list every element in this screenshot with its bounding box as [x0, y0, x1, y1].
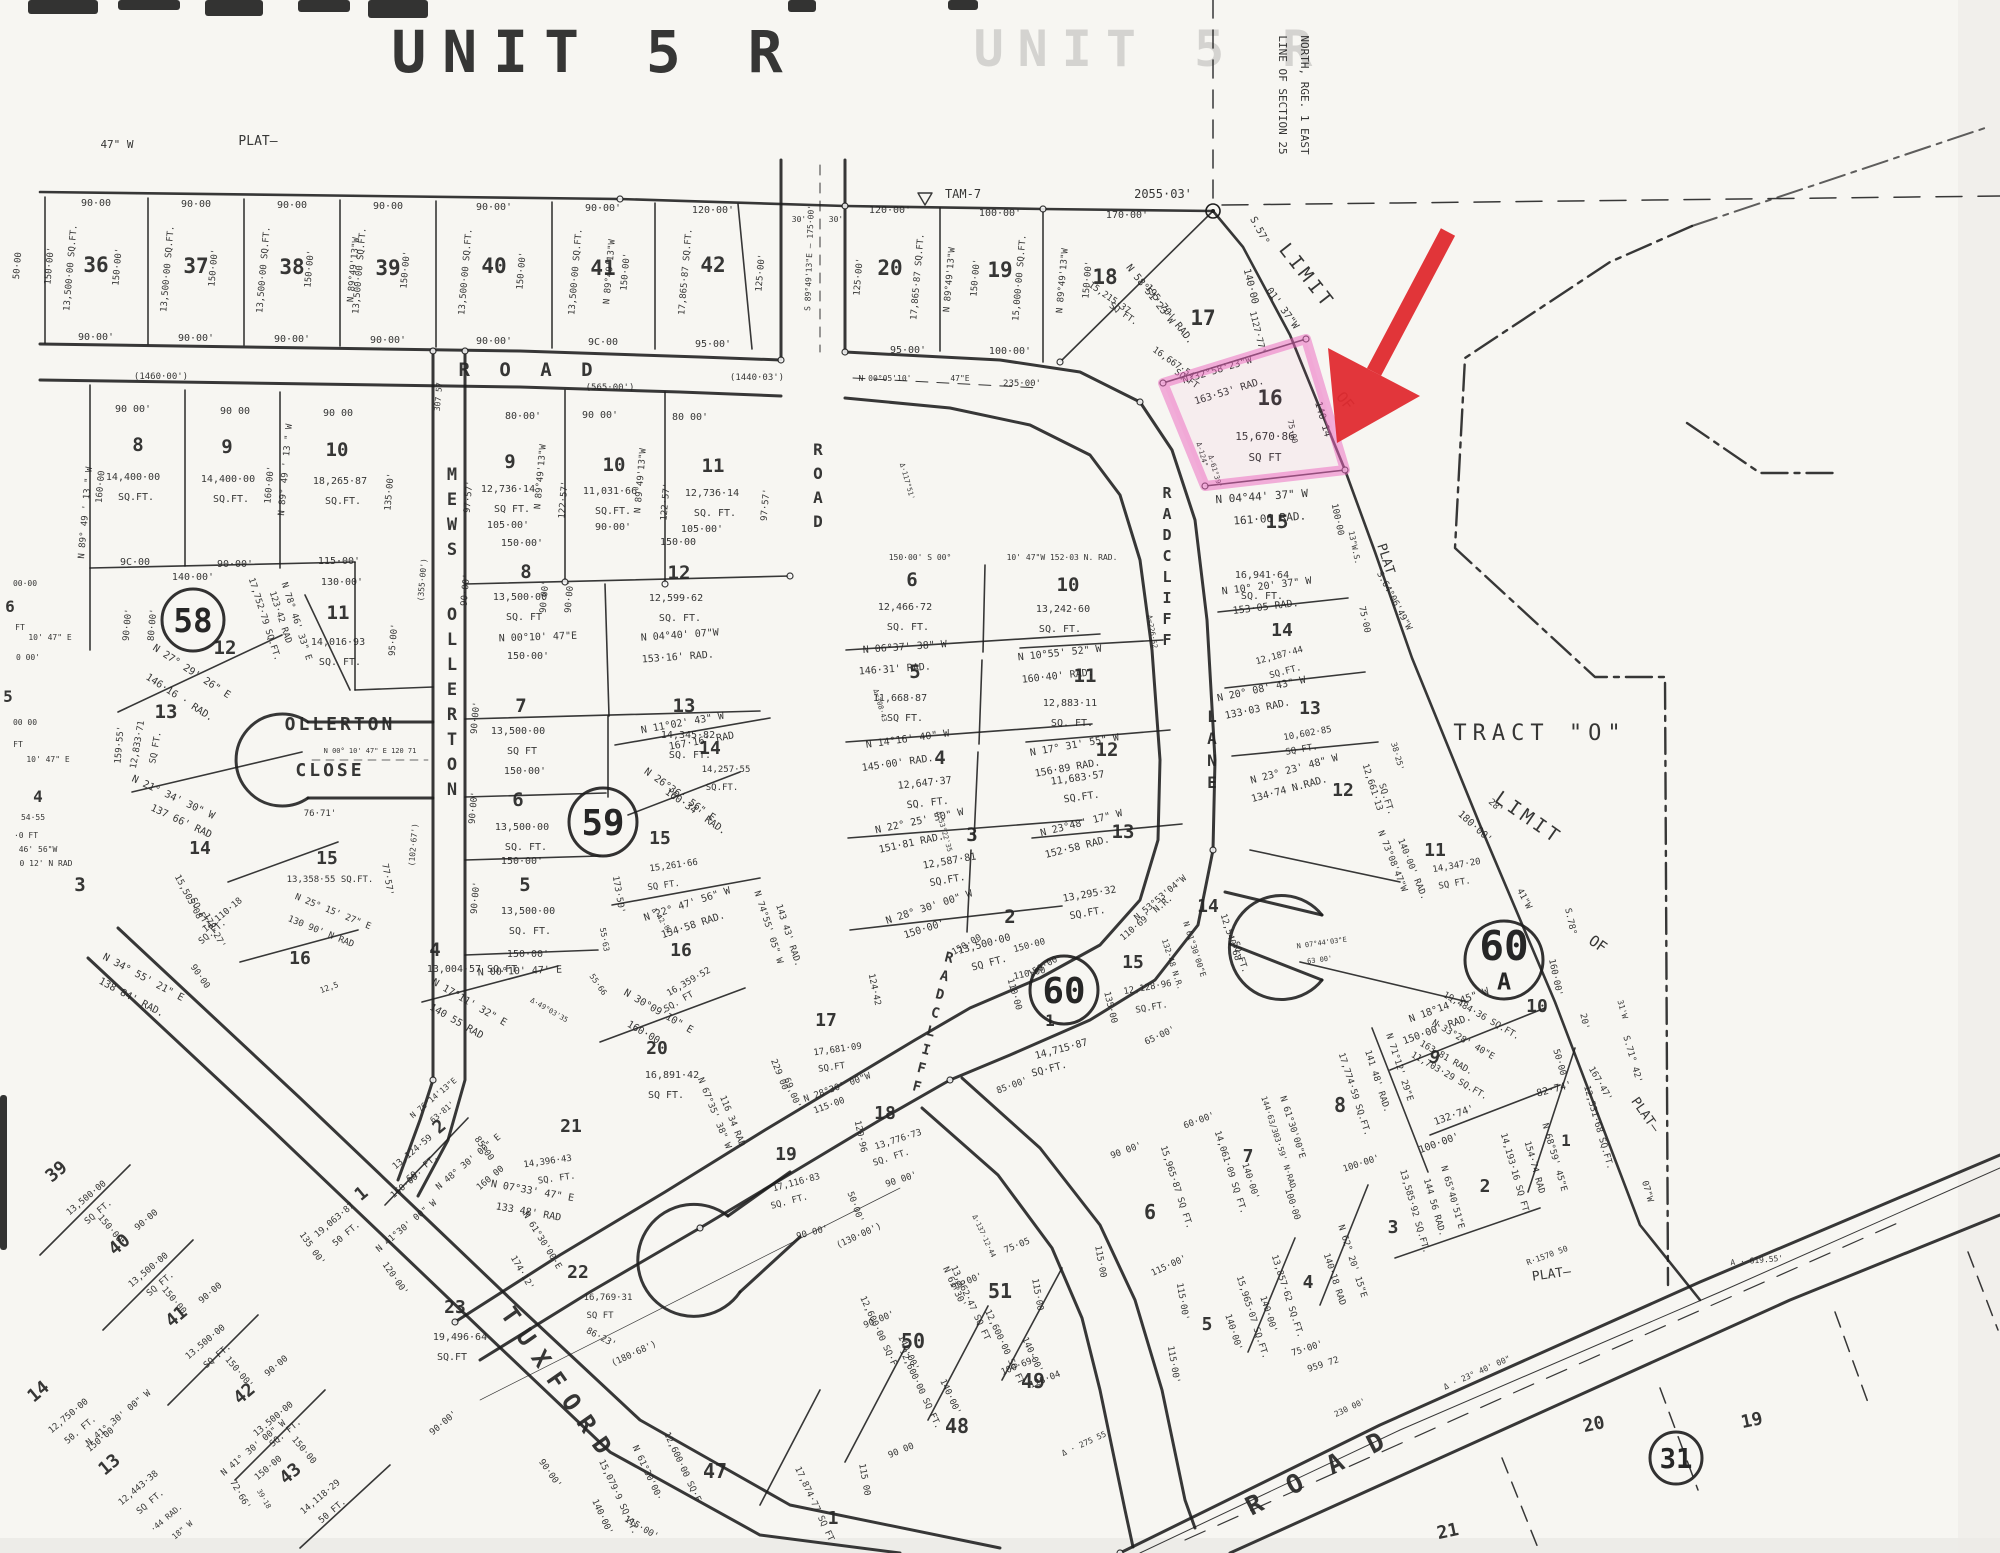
svg-text:2: 2 — [1480, 1176, 1491, 1197]
svg-text:11: 11 — [1074, 665, 1097, 687]
svg-text:86·23': 86·23' — [584, 1326, 617, 1350]
svg-text:40: 40 — [481, 254, 506, 278]
svg-text:N 74°55' 05" W: N 74°55' 05" W — [751, 890, 784, 966]
svg-text:160·34' RAD.: 160·34' RAD. — [663, 787, 728, 837]
svg-text:20': 20' — [1577, 1013, 1590, 1031]
svg-text:16,891·42: 16,891·42 — [645, 1070, 699, 1081]
svg-text:S.71° 42': S.71° 42' — [1620, 1035, 1643, 1085]
svg-text:PLAT—: PLAT— — [1531, 1264, 1572, 1284]
svg-text:100·00': 100·00' — [1342, 1153, 1381, 1174]
svg-text:65·00': 65·00' — [1143, 1025, 1177, 1048]
svg-text:LIMIT: LIMIT — [1491, 787, 1567, 849]
svg-text:10: 10 — [326, 439, 349, 461]
svg-text:TRACT "O": TRACT "O" — [1453, 721, 1626, 746]
svg-text:8: 8 — [1334, 1093, 1346, 1117]
svg-text:4: 4 — [934, 747, 945, 769]
svg-text:90·00': 90·00' — [468, 791, 481, 824]
svg-text:SQ FT.: SQ FT. — [648, 1090, 684, 1101]
svg-text:31: 31 — [1660, 1444, 1693, 1475]
svg-text:12: 12 — [668, 562, 691, 584]
svg-text:39·18: 39·18 — [255, 1488, 272, 1510]
svg-text:150·00': 150·00' — [619, 252, 632, 291]
svg-text:160·00': 160·00' — [263, 465, 276, 504]
svg-text:5: 5 — [1202, 1314, 1213, 1335]
svg-text:00·00: 00·00 — [13, 579, 37, 588]
svg-text:15,000·00 SQ.FT.: 15,000·00 SQ.FT. — [1011, 234, 1029, 321]
svg-text:47: 47 — [703, 1459, 727, 1483]
svg-text:90·00: 90·00 — [188, 963, 212, 991]
svg-text:132·74': 132·74' — [1432, 1103, 1475, 1128]
svg-text:55·66: 55·66 — [587, 972, 608, 997]
svg-text:97·57': 97·57' — [760, 488, 773, 521]
svg-text:SQ FT: SQ FT — [586, 1311, 614, 1321]
svg-text:12,647·37: 12,647·37 — [897, 775, 952, 792]
svg-text:10' 47" E: 10' 47" E — [28, 633, 72, 642]
svg-text:5: 5 — [909, 661, 920, 683]
svg-text:63 00': 63 00' — [1307, 954, 1333, 965]
svg-text:UNIT 5 R: UNIT 5 R — [391, 18, 798, 86]
svg-text:SQ FT.: SQ FT. — [1438, 876, 1472, 891]
svg-text:125·00': 125·00' — [852, 257, 865, 296]
svg-text:6: 6 — [5, 597, 15, 616]
svg-text:55·63: 55·63 — [598, 927, 611, 952]
red-pointer-arrow — [1328, 232, 1448, 443]
svg-text:13,500·00 SQ.FT.: 13,500·00 SQ.FT. — [457, 228, 475, 315]
svg-text:115·00': 115·00' — [1174, 1282, 1190, 1321]
svg-text:122·57': 122·57' — [557, 480, 570, 519]
svg-text:9: 9 — [221, 436, 232, 458]
svg-text:RADCLIFF: RADCLIFF — [1162, 484, 1172, 649]
svg-text:90·00: 90·00 — [373, 201, 403, 212]
svg-text:150·00' S 00°: 150·00' S 00° — [889, 553, 952, 562]
svg-text:14,396·43: 14,396·43 — [523, 1154, 573, 1171]
svg-text:14: 14 — [699, 738, 721, 759]
svg-text:90·00': 90·00' — [585, 203, 621, 214]
svg-text:90 00': 90 00' — [1109, 1141, 1143, 1162]
svg-text:N 04°40' 07"W: N 04°40' 07"W — [640, 627, 720, 644]
svg-text:160·00: 160·00 — [95, 470, 108, 503]
svg-text:90·00: 90·00 — [81, 198, 111, 209]
svg-text:115·00': 115·00' — [318, 556, 360, 567]
svg-text:20: 20 — [646, 1038, 668, 1059]
svg-text:16: 16 — [670, 940, 692, 961]
svg-text:TAM-7: TAM-7 — [945, 187, 981, 201]
svg-text:115·00': 115·00' — [1150, 1254, 1189, 1279]
svg-text:8: 8 — [520, 561, 531, 583]
svg-text:SQ.FT.: SQ.FT. — [706, 783, 739, 793]
svg-text:8: 8 — [132, 434, 143, 456]
svg-text:13,500·00: 13,500·00 — [491, 726, 545, 737]
svg-text:(130·00'): (130·00') — [835, 1221, 883, 1251]
svg-text:50·00: 50·00 — [1550, 1048, 1567, 1077]
svg-text:OLLERTON: OLLERTON — [285, 714, 396, 735]
svg-text:47"E: 47"E — [950, 374, 969, 383]
svg-text:30': 30' — [792, 215, 806, 224]
svg-text:36: 36 — [83, 253, 108, 277]
svg-text:SQ. FT.: SQ. FT. — [1039, 624, 1081, 635]
svg-text:10,602·85: 10,602·85 — [1283, 725, 1333, 743]
svg-text:N 61°30'00·: N 61°30'00· — [630, 1444, 664, 1502]
svg-text:N 89°49'13"W: N 89°49'13"W — [633, 447, 649, 513]
svg-text:N 04°44' 37" W: N 04°44' 37" W — [1215, 487, 1309, 506]
svg-text:13: 13 — [1299, 698, 1321, 719]
svg-text:(180·68'): (180·68') — [610, 1339, 658, 1369]
svg-text:1: 1 — [1561, 1131, 1571, 1150]
svg-text:3: 3 — [74, 874, 85, 896]
svg-text:140·18 RAD: 140·18 RAD — [1321, 1252, 1347, 1307]
svg-text:110·00: 110·00 — [1013, 966, 1047, 983]
svg-text:ROAD: ROAD — [813, 440, 823, 531]
svg-text:39: 39 — [41, 1157, 71, 1187]
svg-text:13,295·32: 13,295·32 — [1062, 884, 1117, 904]
svg-text:60: 60 — [1043, 971, 1086, 1012]
svg-text:90·00': 90·00' — [564, 580, 577, 613]
svg-text:MEWS: MEWS — [447, 465, 458, 560]
svg-text:23: 23 — [444, 1297, 466, 1318]
svg-text:20: 20 — [877, 256, 902, 280]
svg-text:13,500·00: 13,500·00 — [501, 906, 555, 917]
svg-text:14,400·00: 14,400·00 — [201, 474, 255, 485]
svg-text:90 00: 90 00 — [220, 406, 250, 417]
svg-text:N 17°11' 32" E: N 17°11' 32" E — [430, 977, 509, 1029]
svg-text:OLLERTON: OLLERTON — [447, 605, 458, 800]
svg-text:150·00': 150·00' — [969, 258, 982, 297]
svg-text:19: 19 — [775, 1144, 797, 1165]
svg-text:N 89° 49 ' 13 " W: N 89° 49 ' 13 " W — [77, 466, 95, 559]
svg-text:(355·00'): (355·00') — [416, 558, 429, 602]
svg-text:SQ.FT: SQ.FT — [818, 1061, 847, 1075]
svg-text:58: 58 — [173, 602, 212, 640]
svg-text:11: 11 — [1424, 840, 1446, 861]
svg-text:150·00': 150·00' — [504, 766, 546, 777]
svg-text:15,965·87 SQ FT.: 15,965·87 SQ FT. — [1158, 1145, 1194, 1231]
svg-text:SQ.FT.: SQ.FT. — [1135, 1000, 1169, 1015]
svg-text:15: 15 — [316, 848, 338, 869]
svg-text:959 72: 959 72 — [1306, 1355, 1340, 1375]
svg-text:SQ. FT: SQ. FT — [506, 612, 542, 623]
svg-text:SQ. FT.: SQ. FT. — [694, 508, 736, 519]
svg-text:90·00': 90·00' — [470, 881, 483, 914]
svg-text:90·00': 90·00' — [178, 333, 214, 344]
svg-text:153·16' RAD.: 153·16' RAD. — [641, 649, 714, 665]
svg-text:17,116·83: 17,116·83 — [772, 1172, 822, 1194]
svg-text:90·00': 90·00' — [428, 1409, 459, 1438]
svg-text:FT: FT — [15, 623, 25, 632]
svg-text:N 00°10' 47"E: N 00°10' 47"E — [499, 631, 578, 645]
svg-text:SQ FT.: SQ FT. — [970, 954, 1008, 974]
svg-text:120·00': 120·00' — [692, 205, 734, 216]
svg-text:NORTH, RGE. 1 EAST: NORTH, RGE. 1 EAST — [1298, 35, 1311, 155]
plat-map-unit-5r: UNIT 5 RUNIT 5 R47" WPLAT—TAM-72055·03'N… — [0, 0, 2000, 1553]
svg-text:135·00': 135·00' — [383, 472, 396, 511]
svg-text:30': 30' — [829, 215, 843, 224]
svg-text:150·00': 150·00' — [507, 949, 549, 960]
svg-text:SQ. FT.: SQ. FT. — [659, 613, 701, 624]
svg-text:100·00': 100·00' — [979, 208, 1021, 219]
svg-text:38: 38 — [279, 255, 304, 279]
svg-text:18,265·87: 18,265·87 — [313, 476, 367, 487]
svg-text:90·00': 90·00' — [274, 334, 310, 345]
svg-text:0 12' N RAD: 0 12' N RAD — [20, 859, 73, 868]
svg-text:3: 3 — [966, 824, 977, 846]
svg-text:13,004·57 SQ.FT: 13,004·57 SQ.FT — [427, 964, 517, 975]
svg-text:90 00: 90 00 — [887, 1441, 916, 1460]
svg-text:76·71': 76·71' — [304, 809, 337, 819]
svg-text:Δ=226·52: Δ=226·52 — [1145, 614, 1159, 649]
svg-text:14: 14 — [189, 838, 211, 859]
svg-text:SQ.FT.: SQ.FT. — [118, 492, 154, 503]
svg-text:72·66': 72·66' — [227, 1478, 252, 1511]
svg-text:141 48' RAD.: 141 48' RAD. — [1362, 1049, 1392, 1114]
svg-text:90 00': 90 00' — [115, 404, 151, 415]
svg-text:10' 47" E: 10' 47" E — [26, 755, 70, 764]
svg-text:105·00': 105·00' — [681, 524, 723, 535]
svg-text:12,883·11: 12,883·11 — [1043, 698, 1097, 709]
svg-text:N 41°30' 00" W: N 41°30' 00" W — [374, 1198, 439, 1255]
svg-text:SQ FT.: SQ FT. — [494, 504, 530, 515]
svg-text:Δ·137·12·44: Δ·137·12·44 — [970, 1213, 997, 1258]
svg-text:A · 619.55': A · 619.55' — [1730, 1254, 1784, 1268]
svg-text:(1440·03'): (1440·03') — [730, 373, 784, 383]
svg-text:46' 56"W: 46' 56"W — [19, 845, 58, 854]
svg-text:90·00': 90·00' — [460, 573, 473, 606]
svg-text:R O A D: R O A D — [1241, 1424, 1396, 1523]
svg-text:(102·67'): (102·67') — [407, 823, 420, 867]
svg-text:50·00: 50·00 — [12, 252, 24, 280]
svg-text:41"W: 41"W — [1514, 887, 1533, 911]
svg-text:150·00': 150·00' — [303, 249, 316, 288]
svg-text:12: 12 — [1096, 739, 1119, 761]
svg-text:SQ.FT.: SQ.FT. — [1069, 905, 1106, 922]
svg-text:100·00': 100·00' — [1417, 1131, 1460, 1156]
svg-text:12,599·62: 12,599·62 — [649, 593, 703, 604]
svg-text:12,600·00 SQ·F: 12,600·00 SQ·F — [857, 1295, 898, 1368]
svg-text:125·00': 125·00' — [754, 253, 767, 292]
svg-text:12,587·81: 12,587·81 — [922, 851, 977, 871]
svg-text:14,016·93: 14,016·93 — [311, 637, 365, 648]
svg-text:13,776·73: 13,776·73 — [874, 1128, 923, 1153]
svg-text:95·00': 95·00' — [890, 345, 926, 356]
svg-text:14: 14 — [23, 1377, 53, 1407]
svg-text:90·00: 90·00 — [197, 1281, 224, 1306]
svg-text:12,736·14: 12,736·14 — [685, 488, 739, 499]
svg-text:95·00': 95·00' — [695, 339, 731, 350]
svg-text:13,242·60: 13,242·60 — [1036, 604, 1090, 615]
svg-text:07"W: 07"W — [1639, 1180, 1655, 1204]
svg-text:Δ·117°51': Δ·117°51' — [898, 462, 916, 501]
svg-text:6: 6 — [906, 569, 917, 591]
svg-text:90·00': 90·00' — [539, 580, 552, 613]
svg-text:122·57': 122·57' — [659, 482, 672, 521]
svg-text:18: 18 — [874, 1103, 896, 1124]
svg-text:12,736·14: 12,736·14 — [481, 484, 535, 495]
svg-text:12,466·72: 12,466·72 — [878, 602, 932, 613]
svg-text:SQ FT.: SQ FT. — [887, 713, 923, 724]
svg-text:173·50': 173·50' — [610, 875, 626, 914]
svg-text:150·00': 150·00' — [399, 250, 412, 289]
svg-text:100·00: 100·00 — [1282, 1187, 1302, 1221]
svg-text:17,865·87 SQ.FT.: 17,865·87 SQ.FT. — [909, 233, 927, 320]
svg-text:19: 19 — [987, 258, 1012, 282]
svg-text:12: 12 — [1332, 780, 1354, 801]
svg-text:Δ·49°03'35: Δ·49°03'35 — [529, 996, 570, 1024]
svg-text:21: 21 — [560, 1116, 582, 1137]
svg-text:13"W.S.: 13"W.S. — [1347, 530, 1363, 565]
svg-text:S.64°06'49"W: S.64°06'49"W — [1374, 570, 1414, 633]
svg-text:1: 1 — [351, 1182, 373, 1205]
svg-text:LINE OF SECTION 25: LINE OF SECTION 25 — [1276, 35, 1289, 154]
svg-text:54·55: 54·55 — [21, 813, 45, 822]
svg-text:59: 59 — [582, 803, 625, 844]
svg-text:SQ. FT.: SQ. FT. — [1051, 718, 1093, 729]
svg-text:12,128·96: 12,128·96 — [1123, 979, 1173, 997]
svg-text:95·00': 95·00' — [388, 623, 401, 656]
svg-text:SQ.FT.: SQ.FT. — [595, 506, 631, 517]
svg-text:S.57°: S.57° — [1247, 215, 1271, 247]
svg-text:SQ.FT: SQ.FT — [437, 1352, 467, 1363]
svg-text:13,500·00 SQ.FT.: 13,500·00 SQ.FT. — [567, 228, 585, 315]
svg-text:(1460·00'): (1460·00') — [134, 372, 188, 382]
svg-text:·0 FT: ·0 FT — [14, 831, 38, 840]
svg-text:75·00: 75·00 — [1356, 605, 1371, 634]
svg-text:19,496·64: 19,496·64 — [433, 1332, 487, 1343]
svg-text:PLAT—: PLAT— — [238, 134, 277, 149]
svg-text:N 00°05'10': N 00°05'10' — [859, 374, 912, 383]
svg-text:150·00: 150·00 — [660, 537, 696, 548]
svg-text:11,031·66: 11,031·66 — [583, 486, 637, 497]
svg-text:150·00': 150·00' — [111, 247, 124, 286]
svg-text:12,833·71: 12,833·71 — [129, 720, 147, 770]
svg-text:195·70' RAD.: 195·70' RAD. — [1142, 283, 1195, 347]
svg-text:90·00': 90·00' — [78, 332, 114, 343]
svg-text:12,5: 12,5 — [319, 980, 340, 995]
svg-text:150·00': 150·00' — [515, 251, 528, 290]
svg-text:77·57': 77·57' — [379, 863, 394, 897]
svg-text:9C·00: 9C·00 — [120, 557, 150, 568]
svg-text:38·25': 38·25' — [1389, 741, 1406, 771]
svg-text:97·57': 97·57' — [463, 480, 476, 513]
svg-text:N 20° 08' 43" W: N 20° 08' 43" W — [1216, 675, 1308, 705]
svg-text:150·00': 150·00' — [207, 248, 220, 287]
svg-text:115·00: 115·00 — [1029, 1278, 1044, 1312]
svg-text:90·00': 90·00' — [536, 1458, 563, 1490]
svg-text:90·00: 90·00 — [263, 1354, 290, 1379]
svg-text:SQ FT.: SQ FT. — [148, 731, 163, 765]
svg-text:16: 16 — [289, 948, 311, 969]
svg-text:47" W: 47" W — [100, 138, 133, 151]
svg-text:90 00': 90 00' — [795, 1224, 829, 1242]
svg-text:13: 13 — [94, 1450, 124, 1480]
svg-text:6: 6 — [512, 789, 523, 811]
svg-text:60·00': 60·00' — [1182, 1111, 1216, 1132]
svg-text:2: 2 — [1004, 906, 1015, 928]
svg-text:100·00': 100·00' — [989, 346, 1031, 357]
svg-text:9: 9 — [504, 451, 515, 473]
svg-text:124·42: 124·42 — [866, 973, 883, 1007]
svg-text:159·55': 159·55' — [113, 725, 126, 764]
svg-text:CLOSE: CLOSE — [295, 760, 364, 781]
svg-text:SQ·FT.: SQ·FT. — [1030, 1060, 1068, 1080]
svg-text:N 00° 10' 47" E 120 71: N 00° 10' 47" E 120 71 — [324, 747, 417, 755]
svg-text:SQ.FT.: SQ.FT. — [1063, 790, 1100, 806]
svg-text:SQ. FT.: SQ. FT. — [505, 842, 547, 853]
svg-text:OF: OF — [1585, 931, 1610, 956]
svg-text:20: 20 — [1581, 1412, 1607, 1437]
svg-text:150·00': 150·00' — [501, 538, 543, 549]
svg-text:SQ FT.: SQ FT. — [1285, 742, 1319, 757]
svg-text:13: 13 — [673, 695, 696, 717]
svg-text:15: 15 — [1266, 511, 1289, 533]
svg-text:90·00': 90·00' — [122, 608, 135, 641]
svg-text:90 00': 90 00' — [582, 410, 618, 421]
svg-text:SQ.FT.: SQ.FT. — [929, 872, 966, 889]
svg-text:307 57: 307 57 — [433, 382, 445, 412]
svg-text:22: 22 — [567, 1262, 589, 1283]
svg-text:140·00': 140·00' — [937, 1378, 962, 1417]
svg-text:12,600·00 SQ FT.: 12,600·00 SQ FT. — [897, 1348, 943, 1431]
svg-text:17,865·87 SQ.FT.: 17,865·87 SQ.FT. — [677, 228, 695, 315]
svg-text:5: 5 — [3, 687, 13, 706]
svg-text:10: 10 — [1057, 574, 1080, 596]
svg-text:N 89°49'13"W: N 89°49'13"W — [533, 443, 549, 509]
svg-text:N 06°37' 38" W: N 06°37' 38" W — [862, 639, 948, 656]
svg-text:N 89°49'13"W: N 89°49'13"W — [942, 246, 958, 312]
svg-text:17,681·09: 17,681·09 — [813, 1042, 863, 1059]
svg-text:SQ. FT.: SQ. FT. — [887, 622, 929, 633]
svg-text:2: 2 — [429, 1115, 451, 1138]
svg-text:7: 7 — [515, 695, 526, 717]
svg-text:SQ FT.: SQ FT. — [647, 879, 681, 893]
svg-text:4: 4 — [33, 787, 43, 806]
svg-text:4: 4 — [1303, 1272, 1314, 1293]
svg-text:120·00': 120·00' — [380, 1260, 410, 1297]
svg-text:90·00': 90·00' — [476, 336, 512, 347]
svg-text:R·1570 50: R·1570 50 — [1525, 1244, 1569, 1267]
svg-text:RADCLIFF: RADCLIFF — [911, 949, 956, 1096]
svg-text:75·00': 75·00' — [1290, 1339, 1324, 1359]
svg-text:N 07°44'03"E: N 07°44'03"E — [1296, 936, 1347, 951]
map-text-labels: UNIT 5 RUNIT 5 R47" WPLAT—TAM-72055·03'N… — [3, 18, 1783, 1544]
svg-text:6: 6 — [1144, 1200, 1156, 1224]
svg-text:170·00': 170·00' — [1106, 210, 1148, 221]
svg-text:S.78°: S.78° — [1562, 907, 1577, 936]
svg-text:0 00': 0 00' — [16, 653, 40, 662]
svg-text:90·00': 90·00' — [370, 335, 406, 346]
svg-text:13,500·00 SQ.FT.: 13,500·00 SQ.FT. — [62, 224, 80, 311]
svg-text:75·05: 75·05 — [1003, 1236, 1032, 1255]
svg-text:90·00': 90·00' — [595, 522, 631, 533]
svg-text:160·00': 160·00' — [1546, 958, 1564, 997]
svg-text:82·74': 82·74' — [1535, 1080, 1573, 1100]
svg-text:150·00': 150·00' — [43, 246, 56, 285]
svg-text:115·00': 115·00' — [1165, 1345, 1181, 1384]
svg-text:14,257·55: 14,257·55 — [702, 765, 751, 775]
svg-text:PLAT—: PLAT— — [1627, 1095, 1662, 1136]
svg-text:19: 19 — [1739, 1408, 1765, 1433]
svg-text:120·00': 120·00' — [869, 205, 911, 216]
svg-text:110·69' N.R.: 110·69' N.R. — [1119, 894, 1175, 943]
svg-text:140·00': 140·00' — [589, 1498, 614, 1537]
svg-text:235·00': 235·00' — [1003, 379, 1041, 389]
svg-text:150·00': 150·00' — [501, 856, 543, 867]
svg-text:85·00': 85·00' — [995, 1076, 1029, 1097]
svg-text:11: 11 — [702, 455, 725, 477]
svg-text:SQ. FT.: SQ. FT. — [770, 1192, 809, 1211]
svg-text:115 00: 115 00 — [856, 1463, 871, 1497]
svg-text:13,500·00: 13,500·00 — [495, 822, 549, 833]
svg-text:39: 39 — [375, 256, 400, 280]
svg-text:SQ. FT.: SQ. FT. — [319, 657, 361, 668]
